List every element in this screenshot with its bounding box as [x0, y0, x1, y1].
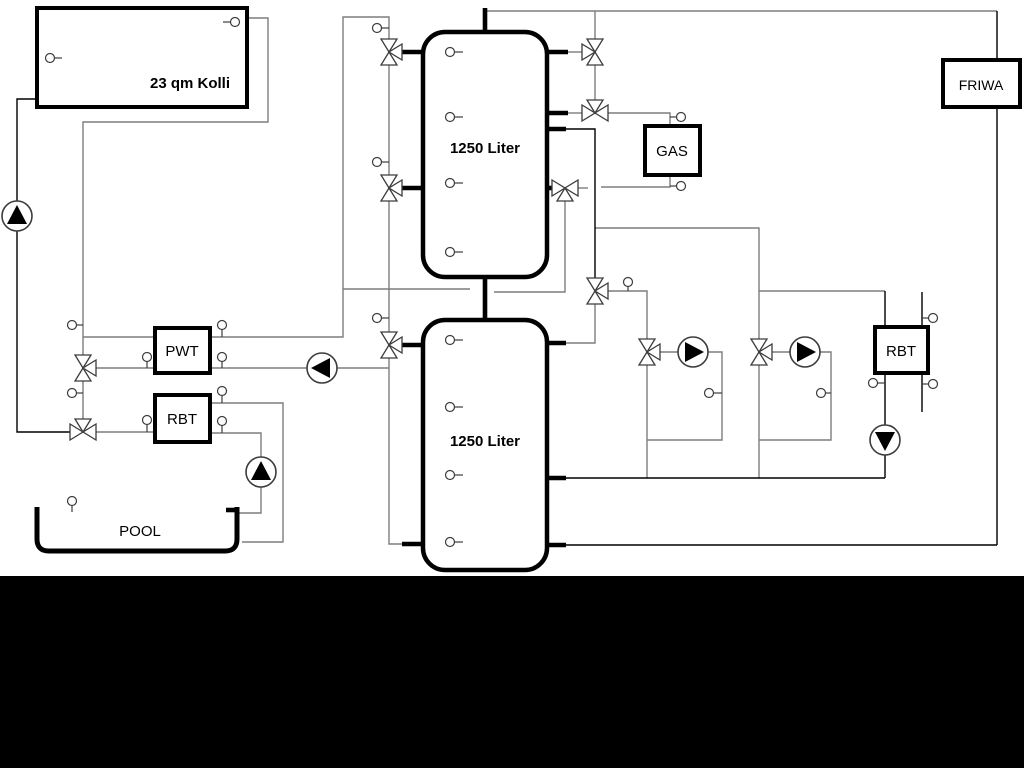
circuit1-return-sensor: [705, 389, 714, 398]
rbt1-right-top-sensor: [218, 387, 227, 396]
left-column-sensor-2: [68, 389, 77, 398]
pwt-left-sensor: [143, 353, 152, 362]
tank1-sensor-1: [446, 48, 455, 57]
pwt-right-top-sensor: [218, 321, 227, 330]
left-column-sensor-1: [68, 321, 77, 330]
rbt2-bottom-sensor: [869, 379, 878, 388]
rbt_left-label: RBT: [167, 411, 197, 428]
bottom-letterbox: [0, 576, 1024, 768]
circuit2-return-sensor: [817, 389, 826, 398]
gas_boiler-label: GAS: [656, 143, 688, 160]
tank1-label: 1250 Liter: [450, 140, 520, 157]
tank2-sensor-4: [446, 538, 455, 547]
tank2-sensor-1: [446, 336, 455, 345]
tank2-sensor-2: [446, 403, 455, 412]
pwt_heat_exchanger-label: PWT: [165, 343, 198, 360]
collector-outline: [37, 8, 247, 107]
rbt1-left-sensor: [143, 416, 152, 425]
rbt2-side-bottom-sensor: [929, 380, 938, 389]
tank1-sensor-4: [446, 248, 455, 257]
tank1-sensor-3: [446, 179, 455, 188]
pool-label: POOL: [119, 523, 161, 540]
friwa-label: FRIWA: [959, 77, 1004, 93]
collector-label: 23 qm Kolli: [150, 75, 230, 92]
schematic-canvas: 23 qm Kolli1250 Liter1250 LiterGASPWTRBT…: [0, 0, 1024, 768]
tank1-sensor-2: [446, 113, 455, 122]
gas-bottom-sensor: [677, 182, 686, 191]
solar-valve2-sensor: [373, 158, 382, 167]
collector-sensor-right: [231, 18, 240, 27]
rbt_right-label: RBT: [886, 343, 916, 360]
gas-top-sensor: [677, 113, 686, 122]
collector-sensor-left: [46, 54, 55, 63]
tank2-sensor-3: [446, 471, 455, 480]
tank2-label: 1250 Liter: [450, 433, 520, 450]
rbt2-side-top-sensor: [929, 314, 938, 323]
diverter-valve-sensor: [624, 278, 633, 287]
solar-valve1-sensor: [373, 24, 382, 33]
hydraulic-schematic: 23 qm Kolli1250 Liter1250 LiterGASPWTRBT…: [0, 0, 1024, 768]
rbt1-right-bottom-sensor: [218, 417, 227, 426]
pool-sensor: [68, 497, 77, 506]
pwt-right-bottom-sensor: [218, 353, 227, 362]
pool-charge-valve-sensor: [373, 314, 382, 323]
